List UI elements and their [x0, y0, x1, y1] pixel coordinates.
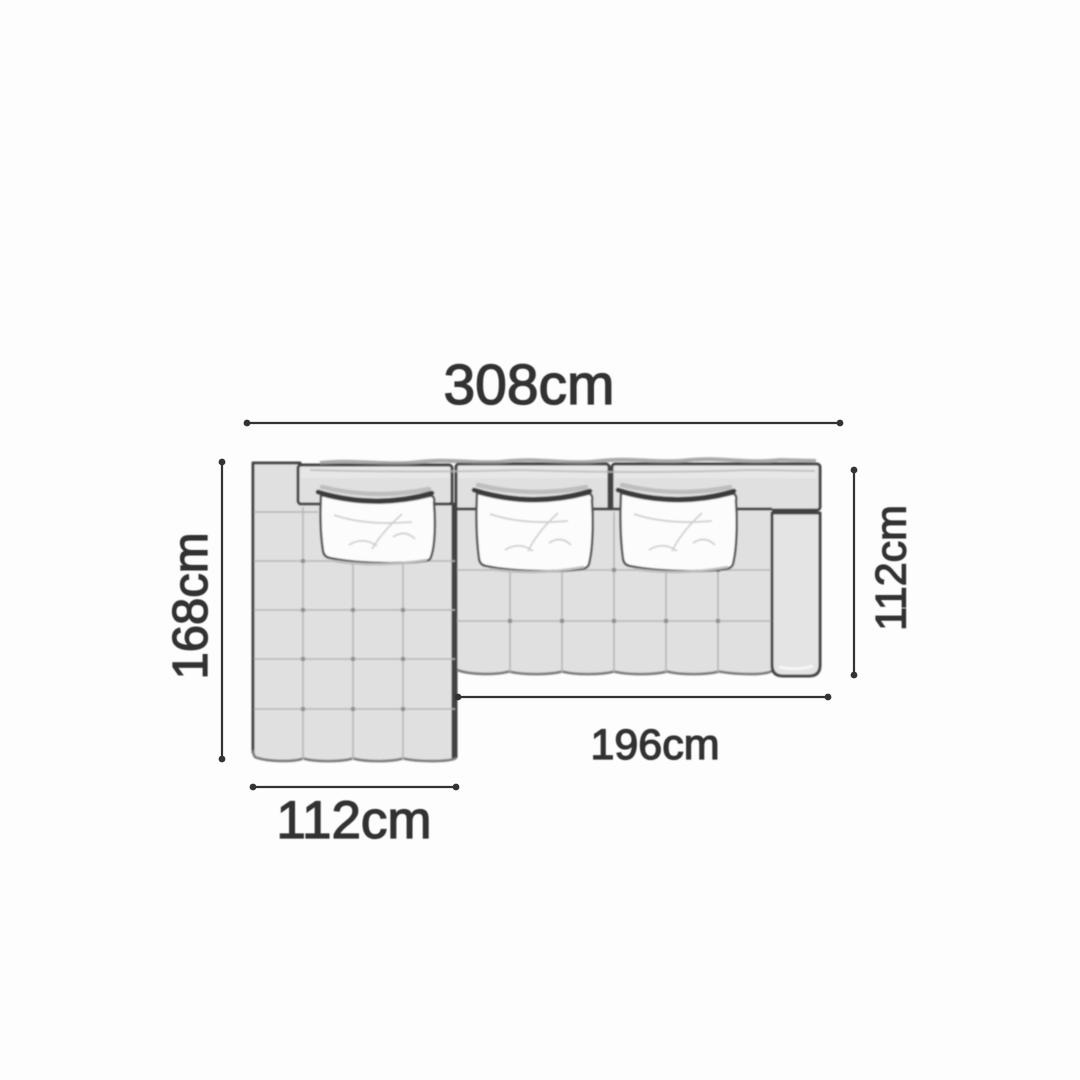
- svg-text:196cm: 196cm: [590, 721, 719, 769]
- svg-text:112cm: 112cm: [867, 505, 915, 631]
- svg-text:112cm: 112cm: [276, 791, 431, 850]
- svg-text:168cm: 168cm: [164, 532, 218, 679]
- svg-text:308cm: 308cm: [443, 353, 614, 417]
